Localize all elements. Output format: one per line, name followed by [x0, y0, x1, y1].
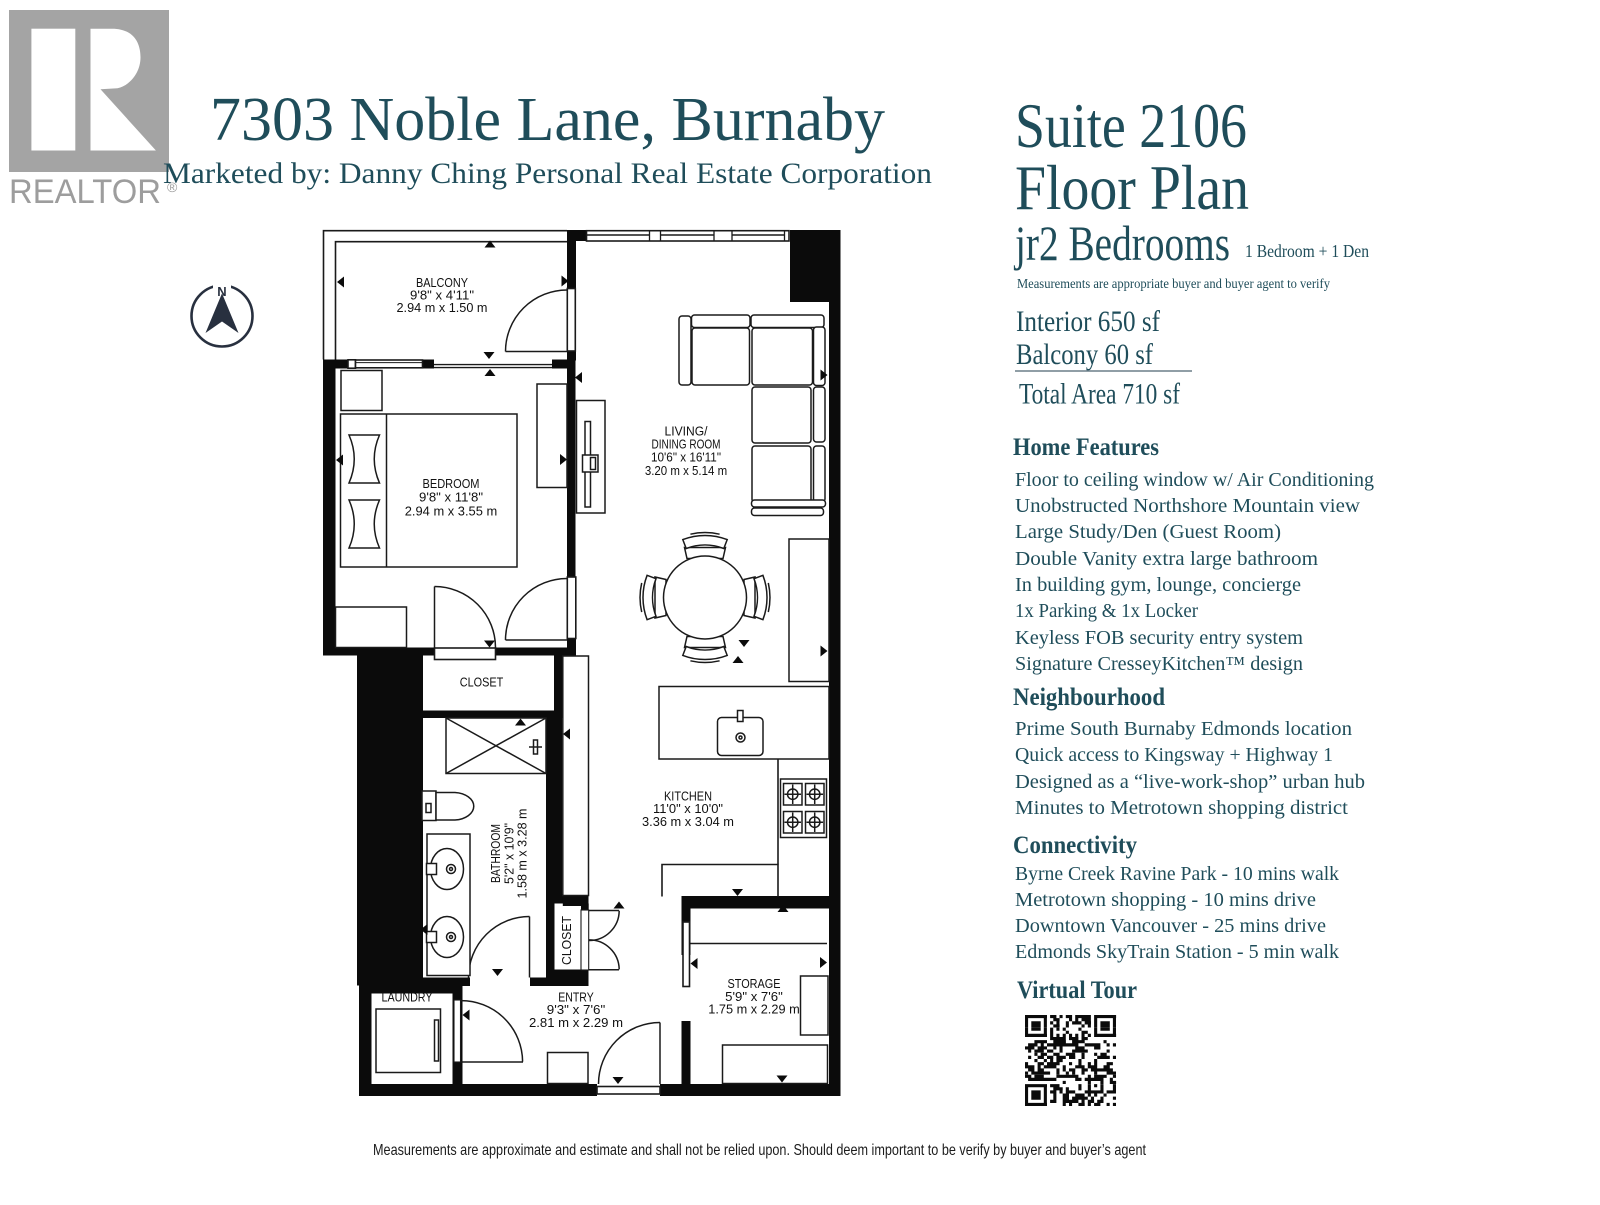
svg-text:Home Features: Home Features: [1013, 434, 1159, 461]
svg-text:Measurements are appropriate b: Measurements are appropriate buyer and b…: [1017, 276, 1330, 291]
svg-text:Floor to ceiling window w/ Air: Floor to ceiling window w/ Air Condition…: [1015, 469, 1374, 491]
svg-text:Minutes to Metrotown shopping: Minutes to Metrotown shopping district: [1015, 797, 1348, 819]
svg-text:1.58 m x 3.28 m: 1.58 m x 3.28 m: [515, 809, 530, 899]
svg-text:Quick access to Kingsway + Hig: Quick access to Kingsway + Highway 1: [1015, 744, 1333, 766]
svg-text:Measurements are approximate a: Measurements are approximate and estimat…: [373, 1142, 1146, 1159]
svg-text:Connectivity: Connectivity: [1013, 832, 1137, 859]
svg-text:9'8" x 11'8": 9'8" x 11'8": [419, 489, 483, 504]
svg-text:Byrne Creek Ravine Park - 10 m: Byrne Creek Ravine Park - 10 mins walk: [1015, 863, 1339, 885]
svg-text:2.81 m x 2.29 m: 2.81 m x 2.29 m: [529, 1015, 623, 1030]
svg-text:Floor Plan: Floor Plan: [1015, 152, 1249, 223]
svg-text:1x Parking & 1x Locker: 1x Parking & 1x Locker: [1015, 600, 1198, 622]
svg-text:Downtown Vancouver - 25 mins d: Downtown Vancouver - 25 mins drive: [1015, 915, 1326, 937]
svg-text:7303 Noble Lane, Burnaby: 7303 Noble Lane, Burnaby: [210, 86, 885, 154]
svg-text:Marketed by: Danny Ching Perso: Marketed by: Danny Ching Personal Real E…: [163, 157, 932, 190]
svg-text:Suite 2106: Suite 2106: [1015, 90, 1247, 161]
svg-text:2.94 m x 1.50 m: 2.94 m x 1.50 m: [397, 300, 488, 315]
svg-text:Large Study/Den (Guest Room): Large Study/Den (Guest Room): [1015, 521, 1281, 543]
svg-text:LAUNDRY: LAUNDRY: [382, 989, 433, 1004]
svg-text:Neighbourhood: Neighbourhood: [1013, 684, 1165, 711]
svg-text:Total Area 710 sf: Total Area 710 sf: [1019, 378, 1180, 411]
svg-text:3.20 m x 5.14 m: 3.20 m x 5.14 m: [645, 463, 727, 478]
svg-text:Double Vanity extra large bath: Double Vanity extra large bathroom: [1015, 548, 1318, 570]
svg-text:Designed as a “live-work-shop”: Designed as a “live-work-shop” urban hub: [1015, 771, 1365, 793]
svg-text:In building gym, lounge, conci: In building gym, lounge, concierge: [1015, 574, 1301, 596]
svg-text:Balcony 60 sf: Balcony 60 sf: [1016, 338, 1153, 371]
svg-text:Metrotown shopping - 10 mins: Metrotown shopping - 10 mins drive: [1015, 889, 1316, 911]
svg-text:Signature CresseyKitchen™ desi: Signature CresseyKitchen™ design: [1015, 653, 1303, 675]
svg-text:REALTOR: REALTOR: [9, 173, 161, 211]
svg-text:Edmonds SkyTrain Station - 5 m: Edmonds SkyTrain Station - 5 min walk: [1015, 941, 1339, 963]
svg-text:Virtual Tour: Virtual Tour: [1017, 977, 1137, 1004]
svg-text:Unobstructed Northshore Mounta: Unobstructed Northshore Mountain view: [1015, 495, 1361, 517]
svg-text:3.36 m x 3.04 m: 3.36 m x 3.04 m: [642, 814, 734, 829]
svg-text:jr2 Bedrooms: jr2 Bedrooms: [1013, 215, 1230, 271]
svg-text:1 Bedroom + 1 Den: 1 Bedroom + 1 Den: [1245, 241, 1369, 261]
svg-text:Keyless FOB security entry sys: Keyless FOB security entry system: [1015, 627, 1303, 649]
svg-text:Prime South Burnaby Edmonds lo: Prime South Burnaby Edmonds location: [1015, 718, 1352, 740]
svg-text:Interior 650 sf: Interior 650 sf: [1016, 305, 1160, 338]
svg-text:1.75 m x 2.29 m: 1.75 m x 2.29 m: [708, 1002, 799, 1017]
svg-text:CLOSET: CLOSET: [559, 916, 574, 965]
svg-text:2.94 m x 3.55 m: 2.94 m x 3.55 m: [405, 503, 498, 518]
svg-text:CLOSET: CLOSET: [460, 675, 504, 690]
